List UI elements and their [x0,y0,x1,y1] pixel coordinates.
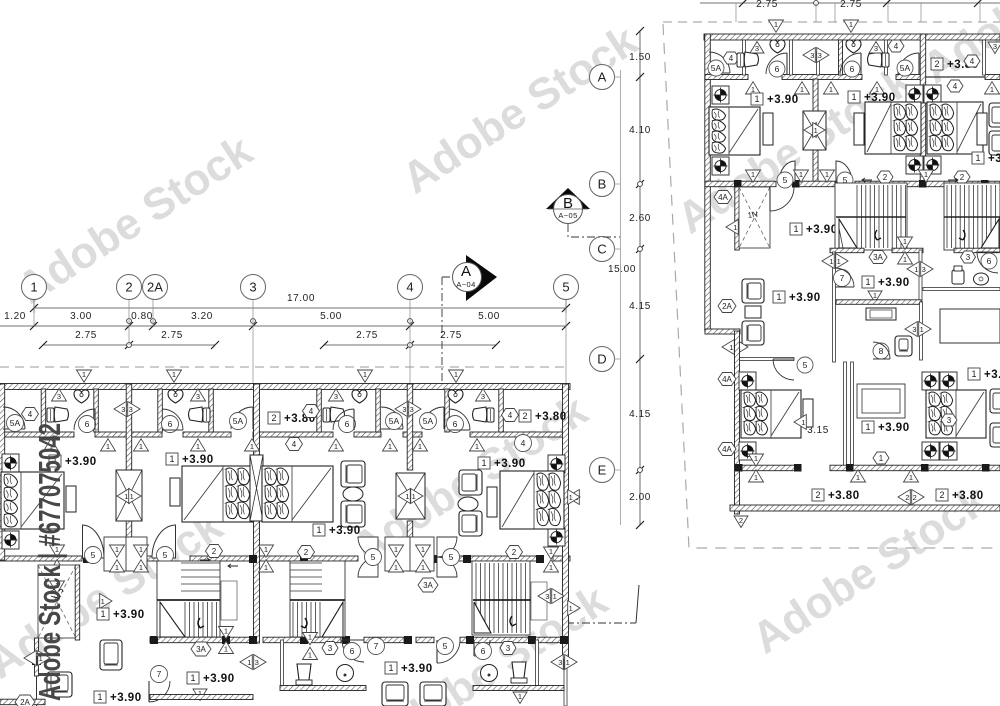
svg-text:B: B [598,177,607,192]
svg-text:+3.90: +3.90 [182,454,214,466]
svg-text:2.60: 2.60 [629,213,651,224]
svg-text:1: 1 [316,525,321,535]
svg-text:1: 1 [130,492,134,501]
svg-text:A: A [461,263,471,280]
svg-text:1: 1 [196,442,200,451]
svg-text:1: 1 [388,663,393,673]
svg-text:4: 4 [894,42,899,51]
svg-text:1: 1 [224,627,228,636]
svg-text:1: 1 [903,255,907,264]
svg-text:5A: 5A [423,416,434,426]
svg-text:1: 1 [729,343,733,352]
svg-text:1: 1 [518,692,522,701]
svg-text:3: 3 [810,51,814,60]
svg-text:1: 1 [405,492,409,501]
svg-text:3: 3 [947,416,952,425]
svg-text:3A: 3A [423,581,433,590]
svg-text:1: 1 [914,265,918,274]
svg-text:6: 6 [850,64,855,74]
svg-text:2: 2 [271,413,276,423]
svg-text:3: 3 [545,592,549,601]
svg-text:1: 1 [334,442,338,451]
svg-text:2: 2 [125,280,132,295]
svg-text:3: 3 [129,405,133,414]
svg-text:1: 1 [250,442,254,451]
svg-text:2A: 2A [147,280,163,295]
svg-text:B: B [563,195,573,212]
svg-text:1: 1 [101,597,105,606]
svg-text:6: 6 [775,64,780,74]
svg-text:4.15: 4.15 [629,409,651,420]
svg-text:2: 2 [905,493,909,502]
svg-text:1: 1 [549,547,553,556]
svg-text:6: 6 [345,419,350,429]
svg-text:1N: 1N [747,210,759,220]
svg-text:3: 3 [255,658,259,667]
svg-text:4A: 4A [722,445,732,454]
svg-text:1: 1 [115,563,119,572]
svg-text:1: 1 [569,604,573,613]
svg-text:1: 1 [879,454,884,463]
svg-text:1: 1 [421,545,425,554]
svg-text:5: 5 [783,175,788,185]
svg-text:4: 4 [970,57,975,66]
svg-text:3: 3 [57,392,61,401]
svg-text:1: 1 [100,609,105,619]
svg-text:5: 5 [91,550,96,560]
svg-text:4.10: 4.10 [629,125,651,136]
svg-text:+3.90: +3.90 [494,458,526,470]
svg-text:5: 5 [443,641,448,651]
svg-text:1: 1 [754,454,758,463]
svg-text:4.15: 4.15 [629,301,651,312]
svg-text:3: 3 [818,51,822,60]
svg-text:15.00: 15.00 [608,264,636,275]
svg-text:1: 1 [865,277,870,287]
svg-text:3: 3 [121,405,125,414]
svg-text:2: 2 [522,411,527,421]
svg-text:A: A [598,70,607,85]
svg-text:2: 2 [960,173,965,182]
svg-text:6: 6 [481,646,486,656]
svg-text:6: 6 [350,646,355,656]
svg-text:1: 1 [776,292,781,302]
svg-text:4: 4 [309,407,314,416]
svg-text:2A: 2A [722,302,732,311]
svg-text:A−05: A−05 [558,211,577,220]
svg-text:2: 2 [913,493,917,502]
svg-text:3.00: 3.00 [70,311,92,322]
svg-text:1: 1 [909,473,913,482]
svg-text:1: 1 [421,563,425,572]
svg-text:2: 2 [883,173,888,182]
svg-text:4: 4 [508,411,513,420]
svg-text:3: 3 [334,392,338,401]
svg-text:1: 1 [799,170,803,179]
svg-text:+3.90: +3.90 [789,292,821,304]
svg-text:2.75: 2.75 [756,0,778,10]
svg-text:1: 1 [169,454,174,464]
svg-text:1: 1 [553,592,557,601]
svg-text:5A: 5A [711,63,722,73]
svg-text:E: E [598,463,607,478]
svg-text:1: 1 [394,545,398,554]
svg-text:5A: 5A [10,418,21,428]
svg-text:1: 1 [774,20,778,29]
svg-text:1: 1 [990,85,994,94]
svg-text:+3.9: +3.9 [984,369,1000,381]
svg-text:4: 4 [292,440,297,449]
svg-text:3: 3 [755,44,759,53]
svg-text:6: 6 [453,419,458,429]
svg-text:+3.90: +3.90 [65,456,97,468]
svg-text:1: 1 [139,545,143,554]
svg-text:5.00: 5.00 [478,311,500,322]
svg-text:5A: 5A [900,63,911,73]
svg-text:2.75: 2.75 [440,330,462,341]
svg-text:1: 1 [475,442,479,451]
svg-text:1: 1 [106,442,110,451]
svg-text:+3.90: +3.90 [110,692,142,704]
svg-text:1: 1 [224,644,228,653]
svg-text:4A: 4A [722,375,732,384]
svg-text:2A: 2A [20,698,30,706]
svg-text:6: 6 [987,256,992,266]
svg-text:4: 4 [953,82,958,91]
svg-text:8: 8 [879,346,884,356]
svg-text:1: 1 [837,257,841,266]
svg-text:1: 1 [388,442,392,451]
svg-text:3: 3 [558,658,562,667]
svg-text:1: 1 [247,658,251,667]
svg-text:1: 1 [264,545,268,554]
svg-text:1: 1 [308,633,312,642]
svg-text:1: 1 [920,325,924,334]
svg-text:1: 1 [190,673,195,683]
svg-text:3: 3 [993,42,997,51]
svg-text:1: 1 [829,257,833,266]
svg-text:1: 1 [793,224,798,234]
svg-text:2.75: 2.75 [75,330,97,341]
svg-text:0.80: 0.80 [131,311,153,322]
svg-text:3: 3 [249,280,256,295]
svg-text:5: 5 [371,552,376,562]
svg-text:3: 3 [410,405,414,414]
svg-text:3: 3 [328,644,333,653]
svg-text:1: 1 [412,492,416,501]
svg-text:1: 1 [856,473,860,482]
svg-text:A−04: A−04 [456,280,475,289]
svg-text:Adobe Stock | #677075042: Adobe Stock | #677075042 [32,423,67,701]
svg-text:2.75: 2.75 [356,330,378,341]
svg-text:1: 1 [733,223,737,232]
svg-text:3: 3 [402,405,406,414]
svg-text:1: 1 [751,170,755,179]
svg-text:2: 2 [939,490,944,500]
svg-text:1: 1 [418,442,422,451]
svg-text:1: 1 [825,170,829,179]
svg-text:1.50: 1.50 [629,52,651,63]
svg-text:1: 1 [308,650,312,659]
svg-text:+3.90: +3.90 [113,609,145,621]
svg-text:+3.90: +3.90 [806,224,838,236]
svg-text:1: 1 [800,85,804,94]
svg-text:1: 1 [97,692,102,702]
svg-text:3: 3 [506,644,511,653]
svg-text:5: 5 [449,552,454,562]
svg-text:5.00: 5.00 [320,311,342,322]
svg-text:6: 6 [168,419,173,429]
svg-text:1: 1 [172,370,176,379]
svg-text:1: 1 [754,94,759,104]
svg-text:3: 3 [874,44,878,53]
svg-text:1: 1 [566,658,570,667]
svg-text:3: 3 [481,392,485,401]
svg-text:1: 1 [849,20,853,29]
svg-text:5A: 5A [389,416,400,426]
svg-text:1: 1 [30,280,37,295]
svg-text:1: 1 [751,85,755,94]
svg-text:7: 7 [374,641,379,651]
svg-text:2.75: 2.75 [161,330,183,341]
svg-text:7: 7 [157,669,162,679]
svg-text:1: 1 [124,492,128,501]
svg-text:4: 4 [28,410,33,419]
svg-text:1.20: 1.20 [4,311,26,322]
svg-text:1: 1 [851,92,856,102]
svg-text:2.75: 2.75 [840,0,862,10]
svg-text:+3.90: +3.90 [401,663,433,675]
svg-text:3A: 3A [196,645,206,654]
svg-text:+3.90: +3.90 [878,277,910,289]
svg-text:1: 1 [139,563,143,572]
svg-text:5: 5 [163,550,168,560]
svg-text:6: 6 [85,419,90,429]
svg-text:+3.90: +3.90 [329,525,361,537]
svg-text:2.00: 2.00 [629,492,651,503]
svg-text:7: 7 [840,273,845,283]
svg-text:1: 1 [754,473,758,482]
svg-text:2: 2 [212,547,217,556]
svg-text:1: 1 [903,237,907,246]
svg-text:2: 2 [934,59,939,69]
svg-text:5: 5 [803,360,808,370]
svg-text:1: 1 [873,291,877,300]
svg-text:1: 1 [971,369,976,379]
svg-text:2: 2 [815,490,820,500]
svg-text:2: 2 [739,516,743,525]
svg-text:5: 5 [562,280,569,295]
svg-text:1: 1 [975,153,980,163]
svg-text:1: 1 [82,370,86,379]
svg-text:1: 1 [549,563,553,572]
svg-text:+3.90: +3.90 [203,673,235,685]
svg-text:1: 1 [569,493,573,502]
svg-text:1: 1 [801,418,805,427]
svg-text:3A: 3A [873,253,883,262]
svg-text:4: 4 [406,280,413,295]
svg-text:3: 3 [196,392,200,401]
svg-text:1: 1 [924,170,928,179]
svg-text:4A: 4A [718,193,728,202]
svg-text:+3.80: +3.80 [535,411,567,423]
svg-text:1: 1 [115,545,119,554]
svg-text:3.20: 3.20 [191,311,213,322]
svg-text:1: 1 [454,370,458,379]
svg-text:1: 1 [394,563,398,572]
svg-text:5A: 5A [233,416,244,426]
svg-text:2: 2 [304,548,309,557]
svg-text:17.00: 17.00 [287,293,315,304]
svg-text:3: 3 [912,325,916,334]
svg-text:3: 3 [966,253,971,262]
svg-text:+3.9: +3.9 [988,153,1000,165]
svg-text:1: 1 [865,422,870,432]
svg-text:+3.90: +3.90 [767,94,799,106]
svg-text:1: 1 [363,370,367,379]
svg-text:+3.80: +3.80 [952,490,984,502]
svg-text:+3.80: +3.80 [828,490,860,502]
svg-text:4: 4 [521,438,526,448]
svg-text:1: 1 [264,563,268,572]
svg-text:3: 3 [922,265,926,274]
svg-text:D: D [597,352,606,367]
svg-text:+3.90: +3.90 [878,422,910,434]
svg-text:4: 4 [729,54,734,63]
svg-text:1: 1 [139,442,143,451]
svg-text:1: 1 [481,458,486,468]
svg-text:1: 1 [829,85,833,94]
svg-text:2: 2 [512,548,517,557]
svg-text:1: 1 [814,126,818,135]
svg-text:C: C [597,242,606,257]
